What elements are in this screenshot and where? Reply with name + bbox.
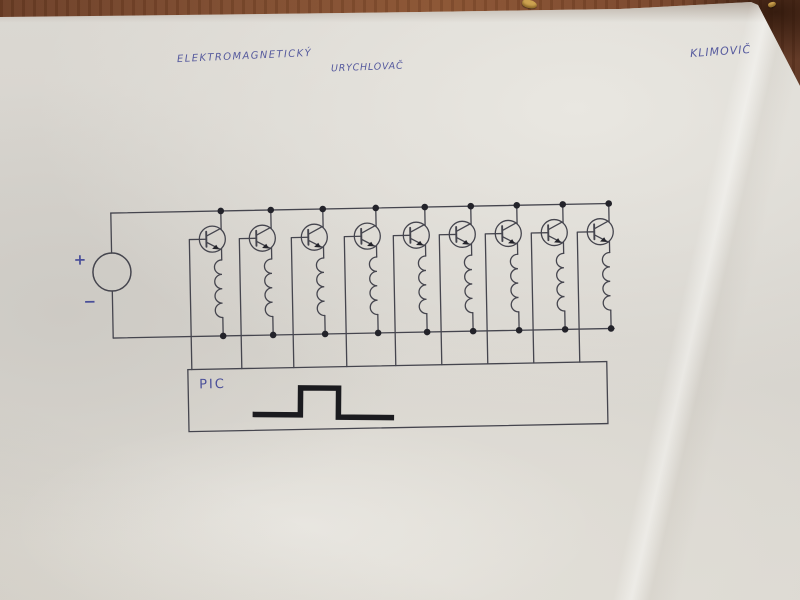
voltage-source-wires <box>111 213 113 338</box>
transistor-collector-lead <box>256 228 270 236</box>
driver-stages <box>189 200 616 369</box>
top-junction-dot <box>513 202 520 209</box>
top-rail-wire <box>111 203 610 213</box>
base-wire-to-pic <box>344 236 363 366</box>
base-wire-to-pic <box>577 232 596 362</box>
bottom-rail-wire <box>113 328 614 338</box>
coil-symbol <box>464 255 473 313</box>
transistor-collector-lead <box>502 223 516 231</box>
coil-symbol <box>418 256 427 314</box>
base-wire-to-pic <box>531 233 550 363</box>
minus-terminal-label: − <box>83 292 96 310</box>
driver-stage-9 <box>577 200 616 362</box>
transistor-collector-lead <box>456 224 470 232</box>
pic-label: PIC <box>199 377 226 393</box>
top-junction-dot <box>421 204 428 211</box>
top-junction-dot <box>267 207 274 214</box>
top-junction-dot <box>467 203 474 210</box>
driver-stage-2 <box>239 207 278 369</box>
pic-controller-box <box>188 362 608 432</box>
bottom-junction-dot <box>322 331 329 338</box>
bottom-junction-dot <box>424 329 431 336</box>
driver-stage-7 <box>485 202 524 364</box>
coil-symbol <box>369 257 378 315</box>
bottom-junction-dot <box>470 328 477 335</box>
base-wire-to-pic <box>393 235 412 365</box>
coil-symbol <box>316 258 325 316</box>
coil-symbol <box>510 254 519 312</box>
base-wire-to-pic <box>291 237 310 367</box>
top-junction-dot <box>605 200 612 207</box>
bottom-junction-dot <box>608 325 615 332</box>
top-junction-dot <box>217 208 224 215</box>
circuit-schematic: + − PIC <box>0 0 800 600</box>
transistor-collector-lead <box>308 227 322 235</box>
top-junction-dot <box>559 201 566 208</box>
top-junction-dot <box>372 205 379 212</box>
coil-symbol <box>556 253 565 311</box>
driver-stage-8 <box>531 201 570 363</box>
transistor-collector-lead <box>410 225 424 233</box>
bottom-junction-dot <box>562 326 569 333</box>
driver-stage-1 <box>189 208 228 370</box>
driver-stage-4 <box>344 205 383 367</box>
coil-symbol <box>602 252 611 310</box>
coil-symbol <box>264 259 273 317</box>
bottom-junction-dot <box>375 330 382 337</box>
voltage-source-symbol <box>93 253 132 292</box>
bottom-junction-dot <box>220 333 227 340</box>
top-junction-dot <box>319 206 326 213</box>
base-wire-to-pic <box>485 234 504 364</box>
base-wire-to-pic <box>439 234 458 364</box>
driver-stage-5 <box>393 204 432 366</box>
coil-symbol <box>214 260 223 318</box>
plus-terminal-label: + <box>74 251 87 269</box>
base-wire-to-pic <box>239 238 258 368</box>
base-wire-to-pic <box>189 239 208 369</box>
transistor-collector-lead <box>548 222 562 230</box>
bottom-junction-dot <box>516 327 523 334</box>
pulse-waveform <box>255 387 391 417</box>
transistor-collector-lead <box>594 221 608 229</box>
driver-stage-3 <box>291 206 330 368</box>
transistor-collector-lead <box>361 226 375 234</box>
photo-frame: + − PIC ELEKTROMAGNETICKÝ URYCHLOVAČ KLI… <box>0 0 800 600</box>
bottom-junction-dot <box>270 332 277 339</box>
transistor-collector-lead <box>206 229 220 237</box>
driver-stage-6 <box>439 203 478 365</box>
